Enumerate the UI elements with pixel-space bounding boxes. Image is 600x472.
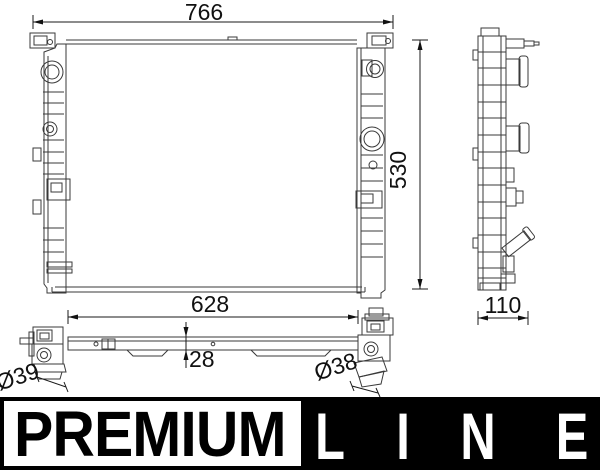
line-letter-2: I [396,397,410,472]
dim-label-lower-width: 628 [191,291,229,317]
dimension-bracket-28: 28 [184,322,215,372]
radiator-technical-drawing-page: 766 530 110 628 [0,0,600,472]
dim-label-depth: 110 [485,292,522,318]
dim-label-left-port: Ø39 [0,357,42,395]
premium-label: PREMIUM [14,397,286,471]
dimension-depth-110: 110 [478,292,528,325]
dimension-left-port-diameter: Ø39 [0,357,68,395]
dim-label-width: 766 [185,0,223,25]
front-view [30,33,393,298]
dimension-height-530: 530 [385,40,428,289]
line-letter-3: N [460,397,495,472]
dim-label-height: 530 [385,151,411,189]
dimension-lower-width-628: 628 [68,291,358,324]
side-view [473,28,539,290]
premium-line-banner: PREMIUM L I N E [0,397,600,470]
line-letter-4: E [556,397,589,472]
dimension-right-port-diameter: Ø38 [311,347,380,397]
technical-drawing: 766 530 110 628 [0,0,600,397]
premium-badge: PREMIUM [4,401,301,466]
dim-label-right-port: Ø38 [311,347,360,385]
dim-label-bracket: 28 [189,346,215,372]
line-letter-1: L [315,397,345,472]
dimension-width-766: 766 [33,0,393,29]
